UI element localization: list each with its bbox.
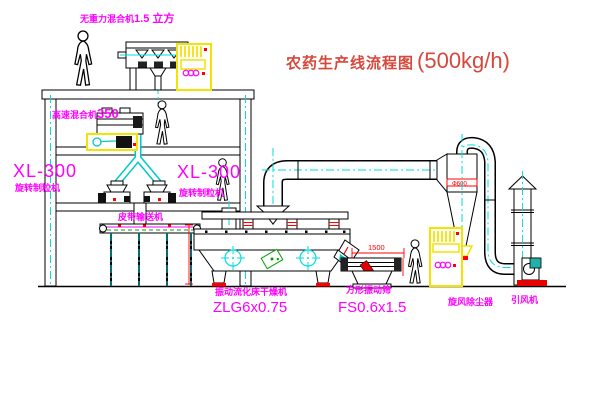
granulator-left-unit (98, 181, 130, 203)
control-cabinet-top (177, 44, 211, 90)
belt-conveyor-label: 皮带输送机 (117, 211, 163, 222)
person-figure (156, 101, 169, 144)
person-figure (75, 31, 92, 85)
dryer-model-label: ZLG6x0.75 (213, 299, 287, 316)
cyclone-name-label: 旋风除尘器 (447, 296, 494, 307)
fan-name-label: 引风机 (511, 294, 538, 305)
indicator-light (456, 232, 459, 235)
high-speed-mixer-label: 高速混合机350 (52, 106, 119, 121)
indicator-light (204, 48, 207, 51)
zero-gravity-mixer-label: 无重力混合机1.5 立方 (79, 11, 174, 25)
building-top-slab (42, 90, 254, 99)
granulator-left-model-label: XL-300 (13, 161, 77, 181)
granulator-left-name-label: 旋转制粒机 (14, 182, 60, 193)
person-figure (409, 240, 422, 283)
cyclone-inlet (437, 154, 447, 192)
granulator-mid-unit (144, 181, 176, 203)
process-flow-drawing: Φ600 无重力混合机1 (0, 0, 600, 403)
sieve-name-label: 方形振动筛 (346, 284, 391, 295)
cyclone-diameter-label: Φ600 (452, 182, 467, 188)
fan-base (517, 280, 547, 286)
dryer-top-frame (202, 212, 348, 219)
building-second-slab (56, 147, 240, 155)
dryer-name-label: 振动流化床干燥机 (215, 286, 287, 297)
induced-draft-fan (517, 258, 547, 286)
fluid-bed-dryer (194, 212, 359, 287)
granulator-mid-model-label: XL-300 (177, 162, 241, 182)
control-cabinet-ground (430, 228, 462, 286)
fan-motor (530, 258, 541, 268)
granulator-mid-name-label: 旋转制粒机 (178, 187, 224, 198)
building-third-slab (56, 203, 240, 211)
sieve-model-label: FS0.6x1.5 (338, 299, 406, 316)
sieve-dimension-label: 1500 (368, 243, 385, 252)
drawing-title: 农药生产线流程图(500kg/h) (285, 48, 510, 73)
spring-mounts (243, 219, 339, 229)
